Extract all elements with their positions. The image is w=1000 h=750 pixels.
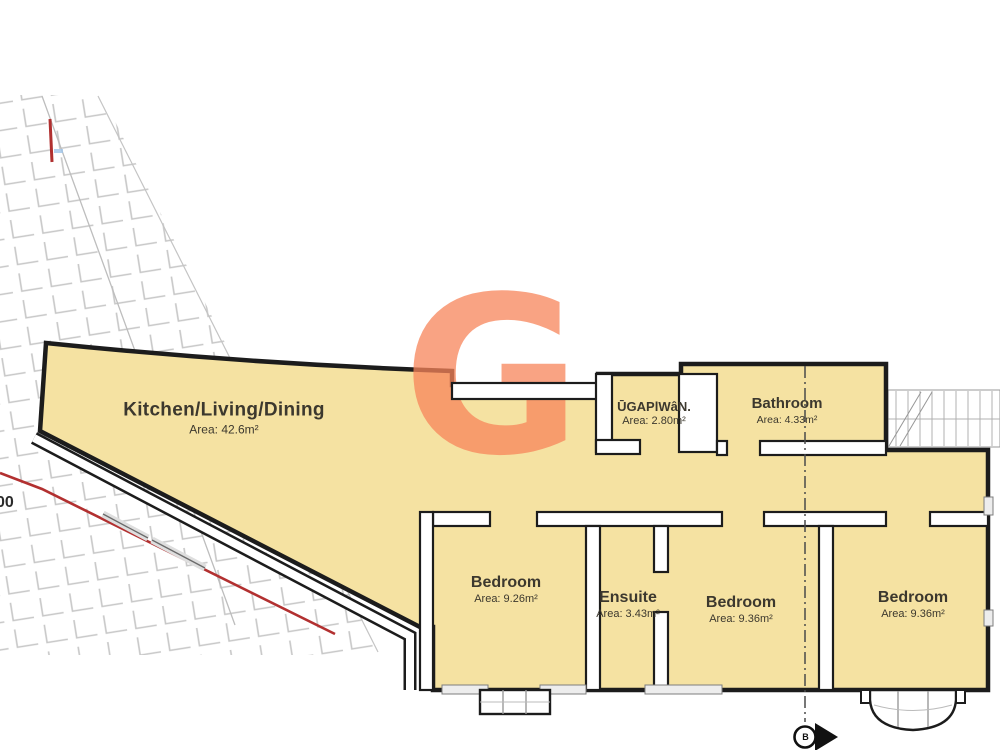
section-arrow bbox=[815, 723, 838, 750]
section-marker-label: B bbox=[802, 732, 808, 742]
bay-window-right bbox=[861, 690, 965, 730]
dimension-text: 00 bbox=[0, 494, 14, 512]
red-survey-tick bbox=[50, 119, 52, 162]
floorplan-drawing: G bbox=[0, 0, 1000, 750]
stairs-hatch bbox=[888, 390, 1000, 447]
floor-plan: G bbox=[0, 0, 1000, 750]
logo-watermark-g: G bbox=[403, 251, 582, 504]
bay-window-left bbox=[480, 690, 550, 714]
